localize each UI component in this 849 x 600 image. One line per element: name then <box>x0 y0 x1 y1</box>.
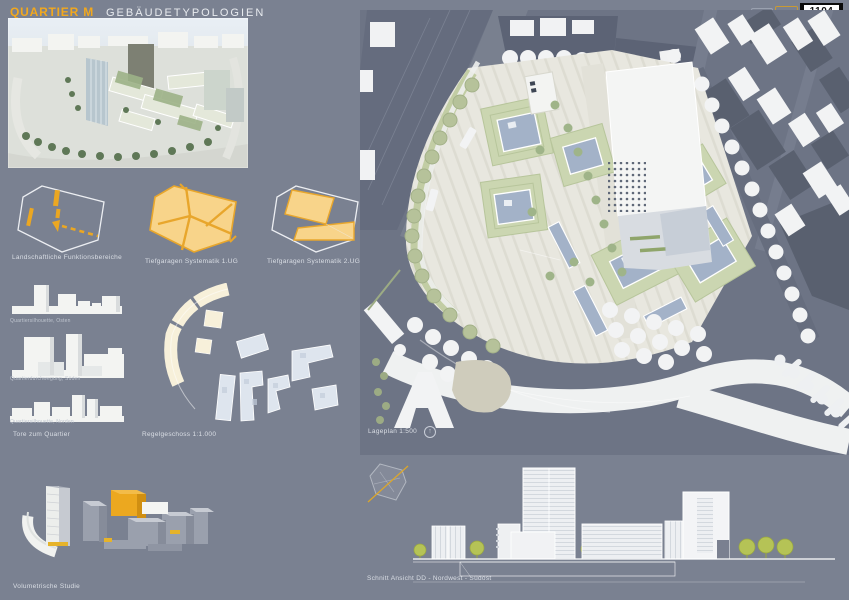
aerial-rendering-image <box>8 18 248 168</box>
massing-section-label: Tore zum Quartier <box>13 431 70 438</box>
diagram-label: Tiefgaragen Systematik 1.UG <box>145 258 238 265</box>
siteplan-label: Lageplan 1:500 <box>368 428 417 435</box>
massing-elevation-south <box>8 332 133 382</box>
section-elevation-dd <box>365 458 845 588</box>
volumetric-study-image <box>8 456 218 578</box>
massing-caption: Quartiersilhouette, Osten <box>10 318 71 324</box>
diagram-garage-level2 <box>262 182 372 260</box>
presentation-board: QUARTIER M GEBÄUDETYPOLOGIEN 1104 <box>0 0 849 600</box>
board-header: QUARTIER M GEBÄUDETYPOLOGIEN <box>10 5 265 19</box>
massing-elevation-east <box>8 283 133 317</box>
massing-caption: Quartiersilhouette, Norden <box>10 419 74 425</box>
north-arrow-icon: ↑ <box>424 426 436 438</box>
diagram-label: Tiefgaragen Systematik 2.UG <box>267 258 360 265</box>
volumetric-label: Volumetrische Studie <box>13 583 80 590</box>
massing-caption: Quartierdurchwegung, Süden <box>10 376 81 382</box>
page-title: QUARTIER M <box>10 5 94 19</box>
site-plan-map <box>360 10 849 455</box>
diagram-garage-level1 <box>140 182 250 260</box>
typical-floor-plan <box>140 283 345 425</box>
section-label: Schnitt Ansicht DD - Nordwest - Südost <box>367 575 491 582</box>
diagram-label: Landschaftliche Funktionsbereiche <box>12 254 122 261</box>
floorplate-label: Regelgeschoss 1:1.000 <box>142 431 216 438</box>
diagram-landscape-functions <box>8 182 118 260</box>
